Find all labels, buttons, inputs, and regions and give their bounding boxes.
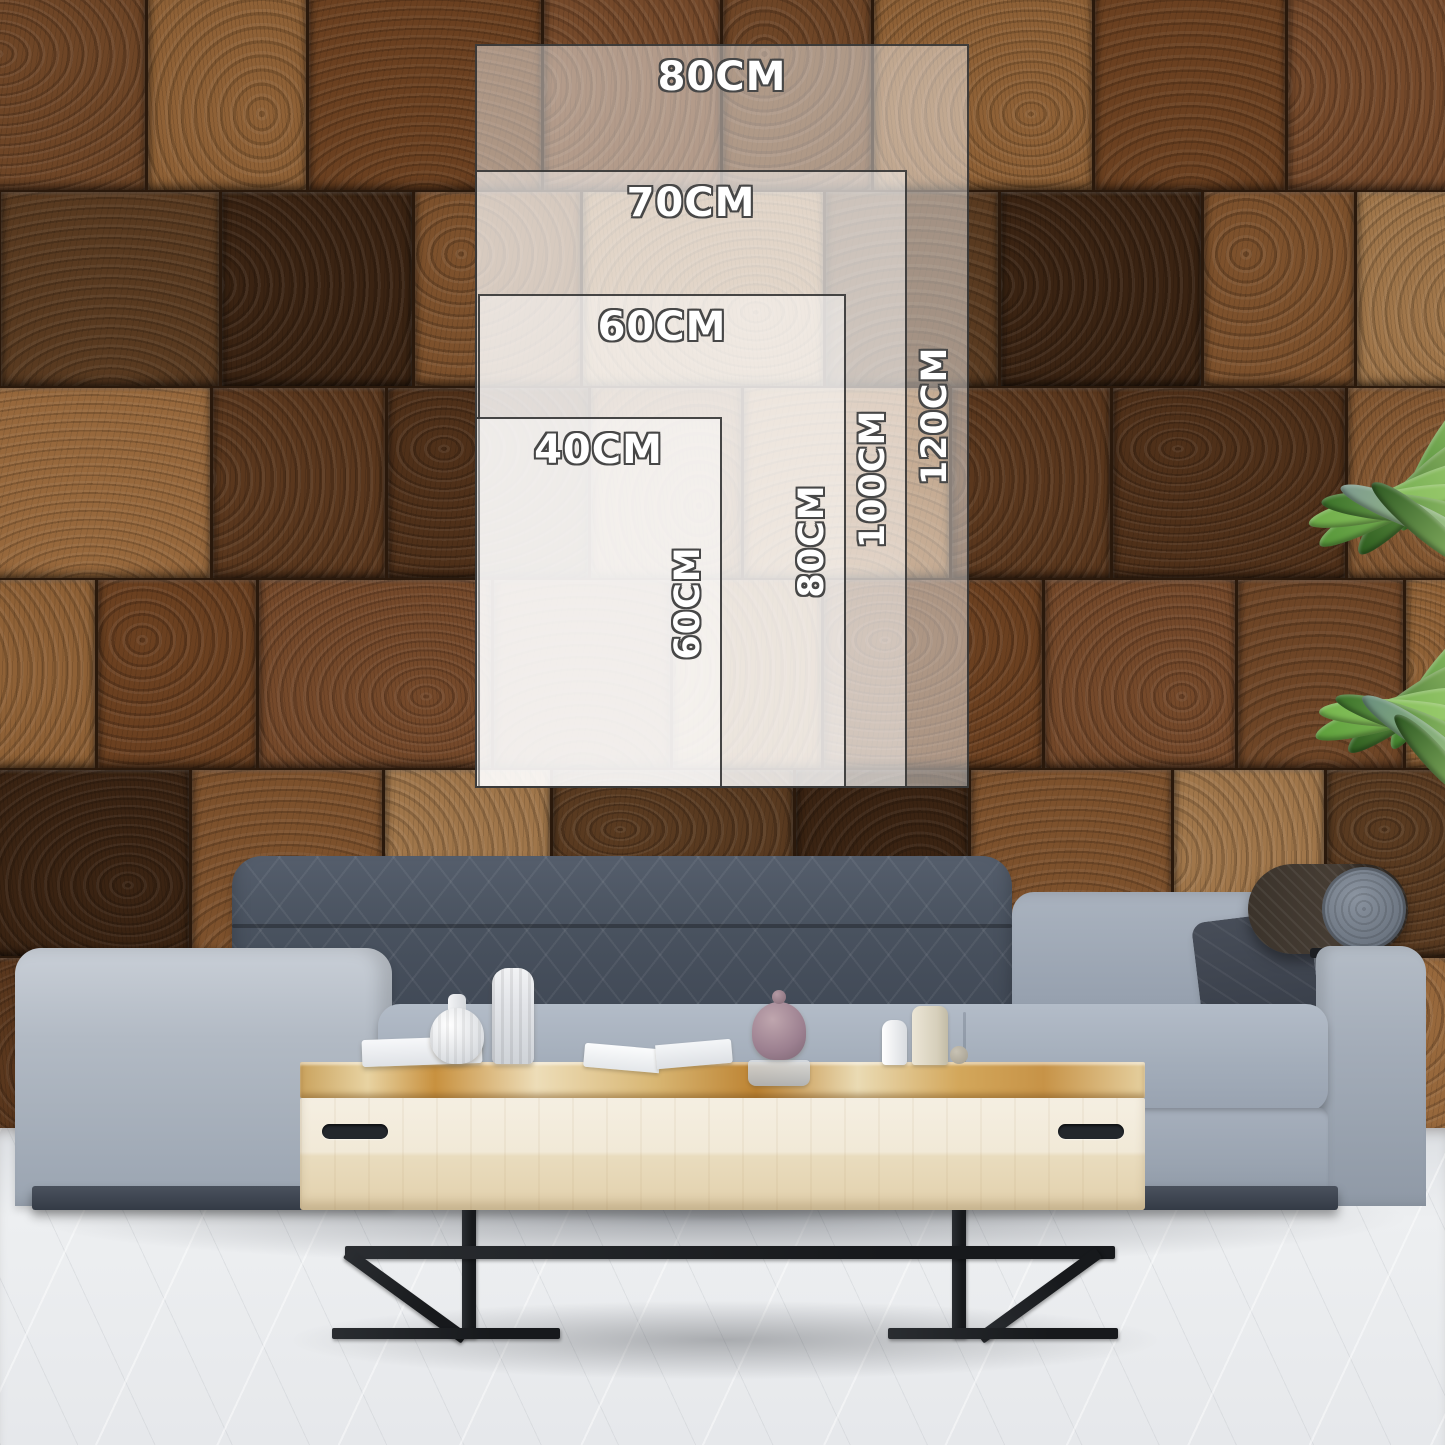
wood-block [0,0,145,190]
sofa-right-arm [1316,946,1426,1206]
wood-block [1095,0,1285,190]
table-front-panel [300,1098,1145,1210]
wood-block [98,580,256,768]
bolster-end-cap [1322,867,1406,951]
cloche-knob [772,990,786,1004]
wood-block [952,388,1110,578]
wood-block [0,580,95,768]
height-label-wrap-120: 120CM [915,347,955,486]
height-label-60: 60CM [668,546,708,659]
gourd-vase [430,1008,484,1064]
table-crossbar [345,1246,1115,1259]
table-foot-right [888,1328,1118,1339]
wood-block [1288,0,1445,190]
wood-block [222,192,412,386]
plant [1185,340,1445,860]
height-label-100: 100CM [853,410,893,549]
wood-block [259,580,491,768]
wood-block [1001,192,1201,386]
size-rect-40x60: 40CM 60CM [475,417,722,788]
height-label-120: 120CM [915,347,955,486]
height-label-wrap-100: 100CM [853,410,893,549]
width-label-70: 70CM [477,180,905,226]
wood-block [0,770,189,956]
cream-canister [912,1006,948,1065]
sofa-bolster-headrest [1248,864,1408,954]
width-label-60: 60CM [480,304,844,350]
cloche-dome [752,1002,806,1060]
tiny-sphere [950,1046,968,1064]
wood-block [0,388,210,578]
striped-vase [492,968,534,1064]
table-top-surface [300,1062,1145,1098]
height-label-wrap-60: 60CM [668,546,708,659]
width-label-80: 80CM [477,54,967,100]
cloche-stand [748,1060,810,1086]
size-guide-mockup: 80CM 120CM 70CM 100CM 60CM 80CM 40CM 60C… [0,0,1445,1445]
small-bottle [882,1020,907,1065]
table-handle-right [1058,1124,1124,1139]
height-label-wrap-80: 80CM [792,484,832,597]
table-foot-left [332,1328,560,1339]
wood-block [1,192,219,386]
width-label-40: 40CM [477,427,720,473]
table-handle-left [322,1124,388,1139]
wood-block [148,0,306,190]
height-label-80: 80CM [792,484,832,597]
wood-block [213,388,385,578]
